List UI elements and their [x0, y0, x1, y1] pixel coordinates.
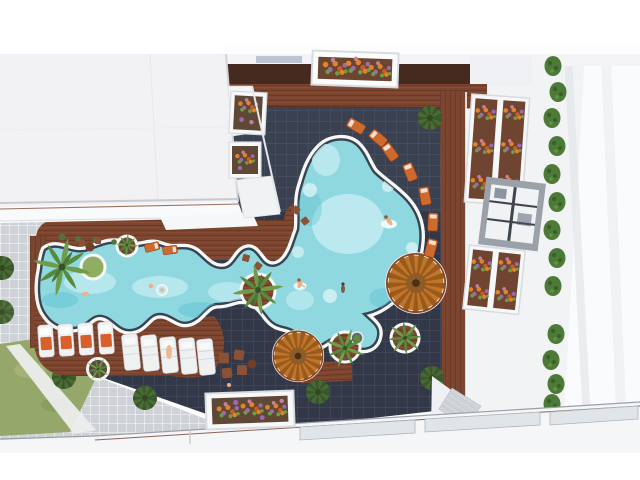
render-canvas [0, 0, 640, 480]
pool-island-grass [81, 255, 105, 279]
sun-lounger [37, 325, 54, 358]
round-bush [418, 106, 442, 130]
flower-planter-box [229, 142, 261, 178]
skylight-glass [256, 56, 302, 63]
skylight-window [478, 177, 546, 252]
lounging-person [166, 345, 172, 359]
resort-aerial-render [0, 0, 640, 480]
wooden-umbrella-deck [273, 331, 322, 380]
flower-planter-wall [463, 245, 525, 315]
roof-top-left [0, 54, 258, 230]
deck-right-band [440, 92, 466, 402]
flower-planter-box [311, 51, 398, 88]
flower-planter-box [205, 390, 294, 429]
sun-lounger [121, 333, 141, 370]
swimmer [341, 282, 345, 293]
wooden-umbrella-deck [387, 254, 445, 312]
